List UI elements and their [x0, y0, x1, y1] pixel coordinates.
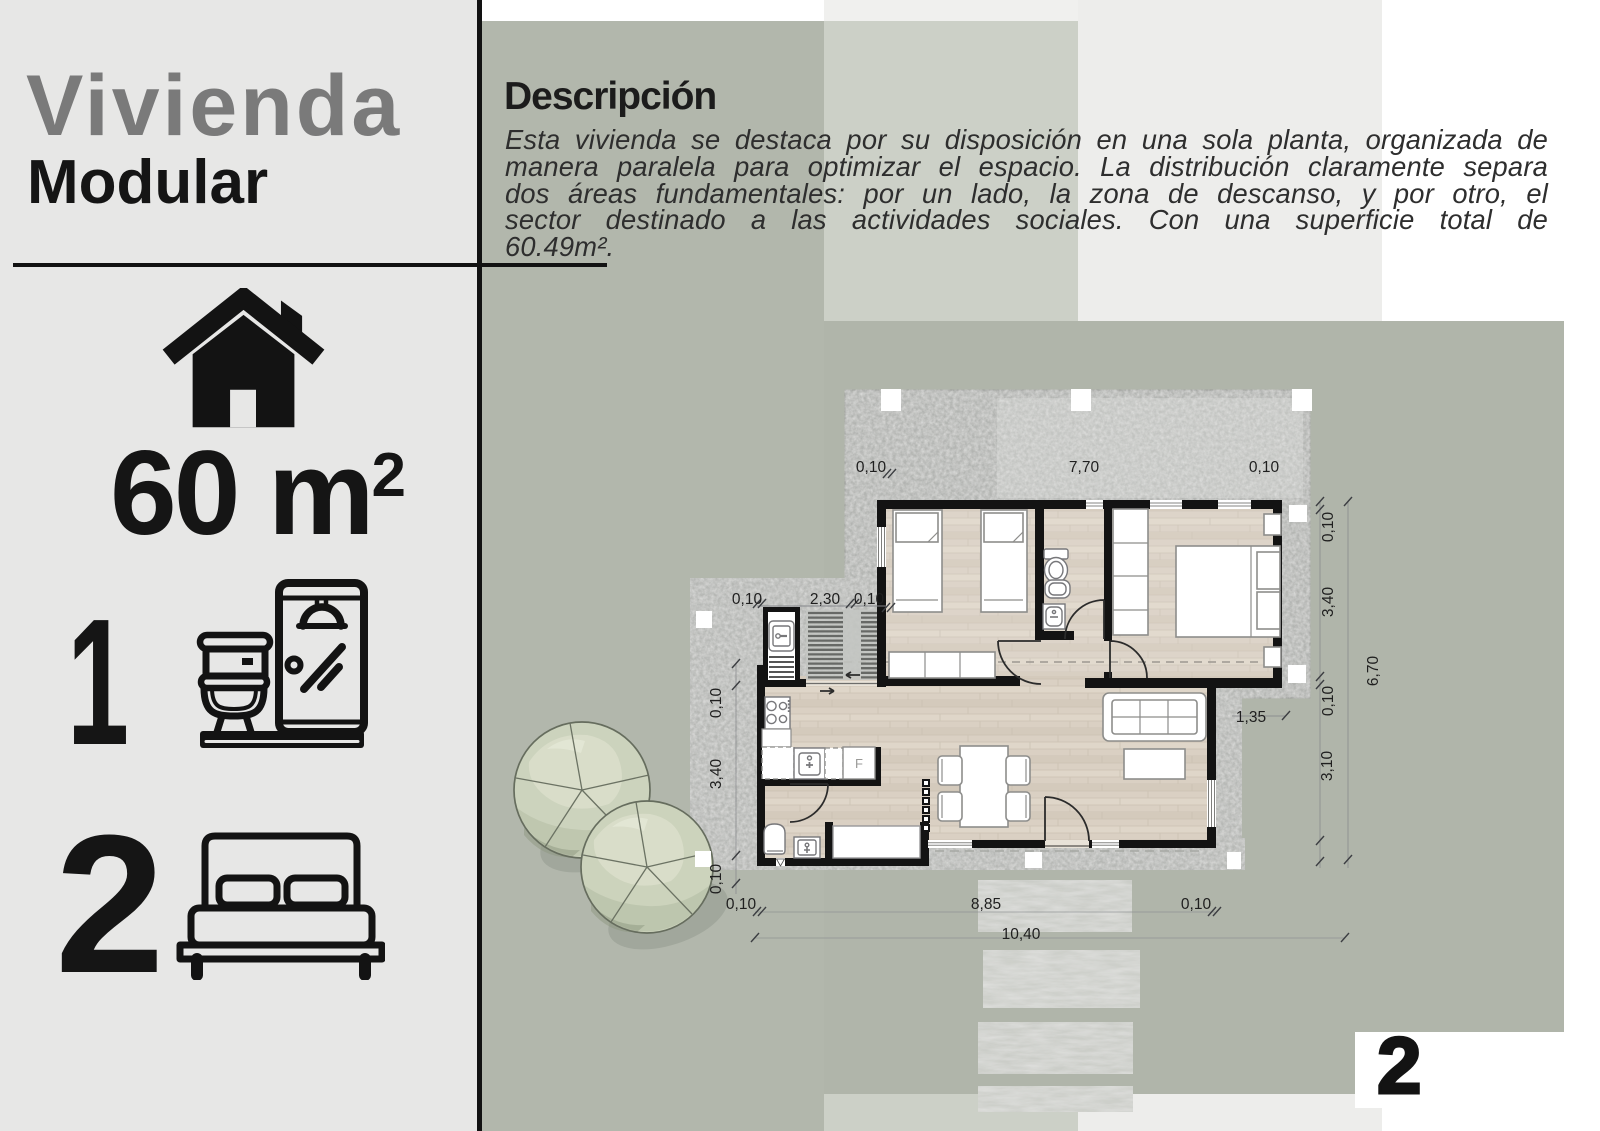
svg-text:F: F — [855, 756, 863, 771]
svg-text:0,10: 0,10 — [1320, 686, 1337, 717]
svg-text:8,85: 8,85 — [971, 896, 1001, 913]
svg-text:3,40: 3,40 — [708, 759, 725, 790]
svg-text:0,10: 0,10 — [1181, 896, 1212, 913]
svg-text:0,10: 0,10 — [708, 864, 725, 895]
svg-text:7,70: 7,70 — [1069, 459, 1100, 476]
svg-text:0,10: 0,10 — [732, 591, 763, 608]
svg-text:0,10: 0,10 — [854, 591, 885, 608]
svg-text:0,10: 0,10 — [726, 896, 757, 913]
svg-text:6,70: 6,70 — [1365, 656, 1382, 687]
svg-text:10,40: 10,40 — [1002, 926, 1041, 943]
svg-text:0,10: 0,10 — [856, 459, 887, 476]
svg-text:0,10: 0,10 — [708, 688, 725, 719]
svg-text:3,40: 3,40 — [1320, 587, 1337, 618]
svg-text:2,30: 2,30 — [810, 591, 841, 608]
svg-text:1,35: 1,35 — [1236, 709, 1266, 726]
svg-text:3,10: 3,10 — [1319, 751, 1336, 782]
svg-text:0,10: 0,10 — [1320, 512, 1337, 543]
svg-text:0,10: 0,10 — [1249, 459, 1280, 476]
